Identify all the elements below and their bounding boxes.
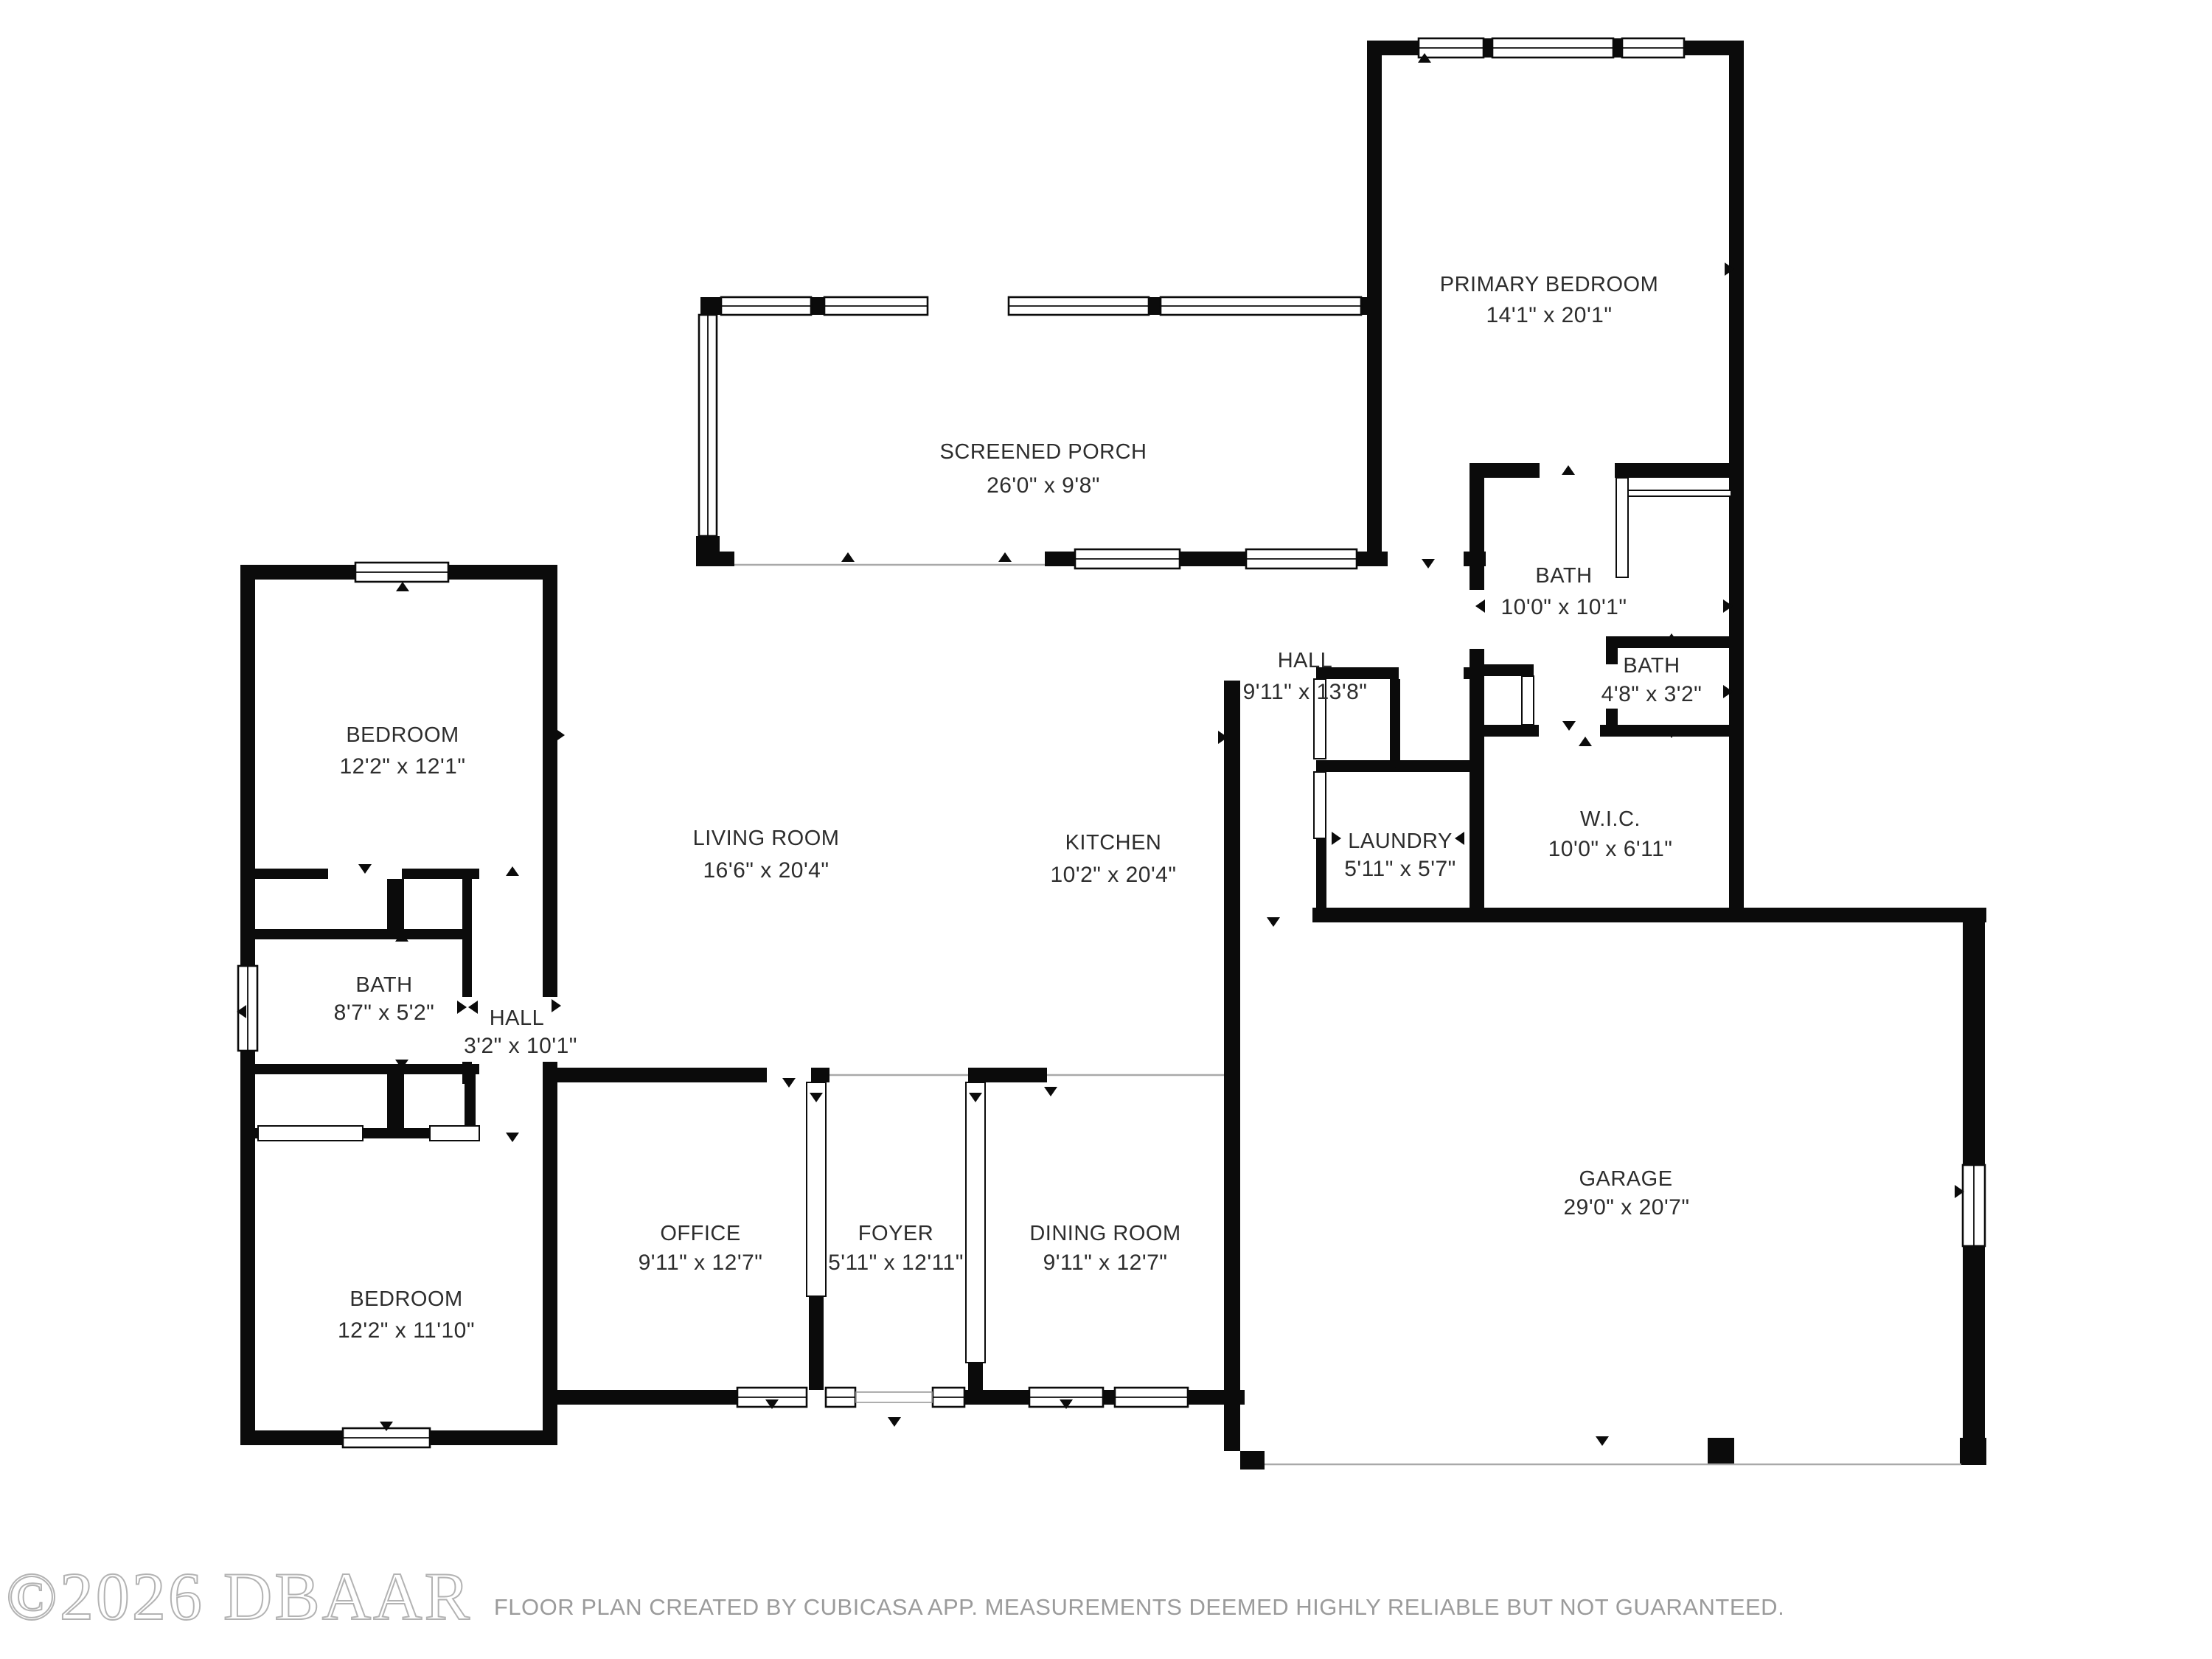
screen-wall-icon [721,297,811,315]
screen-wall-icon [1161,297,1361,315]
door-opening-icon [1522,676,1534,725]
door-arrow-icon [1455,832,1464,845]
window-icon [1115,1388,1188,1407]
door-arrow-icon [358,864,372,874]
door-arrow-icon [1422,559,1435,568]
window-icon [1246,549,1357,568]
door-arrow-icon [1475,599,1485,613]
room-dims-primary-bedroom: 14'1" x 20'1" [1486,303,1612,327]
cased-opening-icon [966,1082,985,1363]
room-dims-bedroom-lower: 12'2" x 11'10" [338,1318,475,1343]
room-label-laundry: LAUNDRY [1348,829,1453,853]
room-dims-bedroom-upper: 12'2" x 12'1" [339,754,465,779]
door-arrow-icon [1562,465,1575,475]
door-arrow-icon [457,1001,467,1014]
room-label-hall-left: HALL [490,1006,545,1030]
room-dims-office: 9'11" x 12'7" [639,1251,763,1275]
footer-disclaimer: FLOOR PLAN CREATED BY CUBICASA APP. MEAS… [494,1594,1784,1620]
window-icon [826,1388,855,1407]
opening-arrow-icon [998,552,1012,562]
door-arrow-icon [1579,737,1592,746]
room-dims-hall-left: 3'2" x 10'1" [464,1034,577,1058]
room-label-primary-bedroom: PRIMARY BEDROOM [1440,273,1658,296]
window-icon [1622,38,1684,58]
room-label-garage: GARAGE [1579,1167,1672,1191]
opening-arrow-icon [1044,1087,1057,1096]
room-label-wic: W.I.C. [1580,807,1641,831]
room-labels: PRIMARY BEDROOM 14'1" x 20'1" SCREENED P… [334,273,1703,1343]
screen-wall-icon [1009,297,1149,315]
room-label-hall-right: HALL [1278,649,1333,672]
copyright-watermark: ©2026 DBAAR [6,1559,472,1634]
room-dims-hall-right: 9'11" x 13'8" [1243,680,1368,704]
door-arrow-icon [1332,832,1341,845]
room-label-screened-porch: SCREENED PORCH [940,440,1147,464]
room-label-kitchen: KITCHEN [1065,831,1162,855]
room-dims-bath-hall: 8'7" x 5'2" [334,1001,435,1025]
window-icon [1963,1165,1985,1246]
door-arrow-icon [506,866,519,876]
window-icon [1492,38,1613,58]
room-dims-laundry: 5'11" x 5'7" [1344,857,1456,881]
room-label-bath-toilet: BATH [1623,654,1680,678]
front-door-icon [856,1392,932,1402]
window-arrow-icon [396,582,409,591]
shower-glass-icon [1628,490,1731,496]
screen-wall-icon [699,315,717,536]
room-label-bedroom-lower: BEDROOM [349,1287,462,1311]
door-arrow-icon [1562,721,1576,731]
room-label-dining-room: DINING ROOM [1029,1222,1180,1245]
garage-door-arrow-icon [1596,1436,1609,1446]
front-door-arrow-icon [888,1417,901,1427]
door-arrow-icon [782,1078,796,1088]
room-dims-dining-room: 9'11" x 12'7" [1043,1251,1168,1275]
room-dims-living-room: 16'6" x 20'4" [703,858,829,883]
room-dims-bath-primary: 10'0" x 10'1" [1500,595,1627,619]
room-dims-bath-toilet: 4'8" x 3'2" [1601,682,1703,706]
opening-arrow-icon [841,552,855,562]
window-icon [355,563,448,582]
screen-wall-icon [824,297,928,315]
room-label-bedroom-upper: BEDROOM [346,723,459,747]
room-dims-foyer: 5'11" x 12'11" [828,1251,964,1275]
window-icon [933,1388,964,1407]
opening-arrow-icon [552,999,561,1012]
room-label-foyer: FOYER [858,1222,933,1245]
room-label-office: OFFICE [660,1222,740,1245]
room-label-living-room: LIVING ROOM [693,827,840,850]
room-dims-garage: 29'0" x 20'7" [1563,1195,1689,1220]
door-arrow-icon [468,1001,478,1014]
window-icon [238,966,257,1051]
floor-plan-canvas: PRIMARY BEDROOM 14'1" x 20'1" SCREENED P… [0,0,2212,1659]
marker-arrow-icon [555,728,565,742]
room-label-bath-hall: BATH [355,973,412,997]
room-dims-kitchen: 10'2" x 20'4" [1050,863,1176,887]
door-opening-icon [1314,772,1326,838]
floor-plan-page: PRIMARY BEDROOM 14'1" x 20'1" SCREENED P… [0,0,2212,1659]
door-arrow-icon [506,1133,519,1142]
window-icon [1419,38,1484,58]
room-dims-wic: 10'0" x 6'11" [1548,837,1673,861]
door-arrow-icon [1267,917,1280,927]
closet-door-icon [258,1126,363,1141]
room-label-bath-primary: BATH [1535,564,1592,588]
cased-opening-icon [807,1082,826,1296]
room-dims-screened-porch: 26'0" x 9'8" [987,473,1100,498]
shower-glass-icon [1616,478,1628,577]
window-icon [1075,549,1180,568]
closet-door-icon [430,1126,479,1141]
